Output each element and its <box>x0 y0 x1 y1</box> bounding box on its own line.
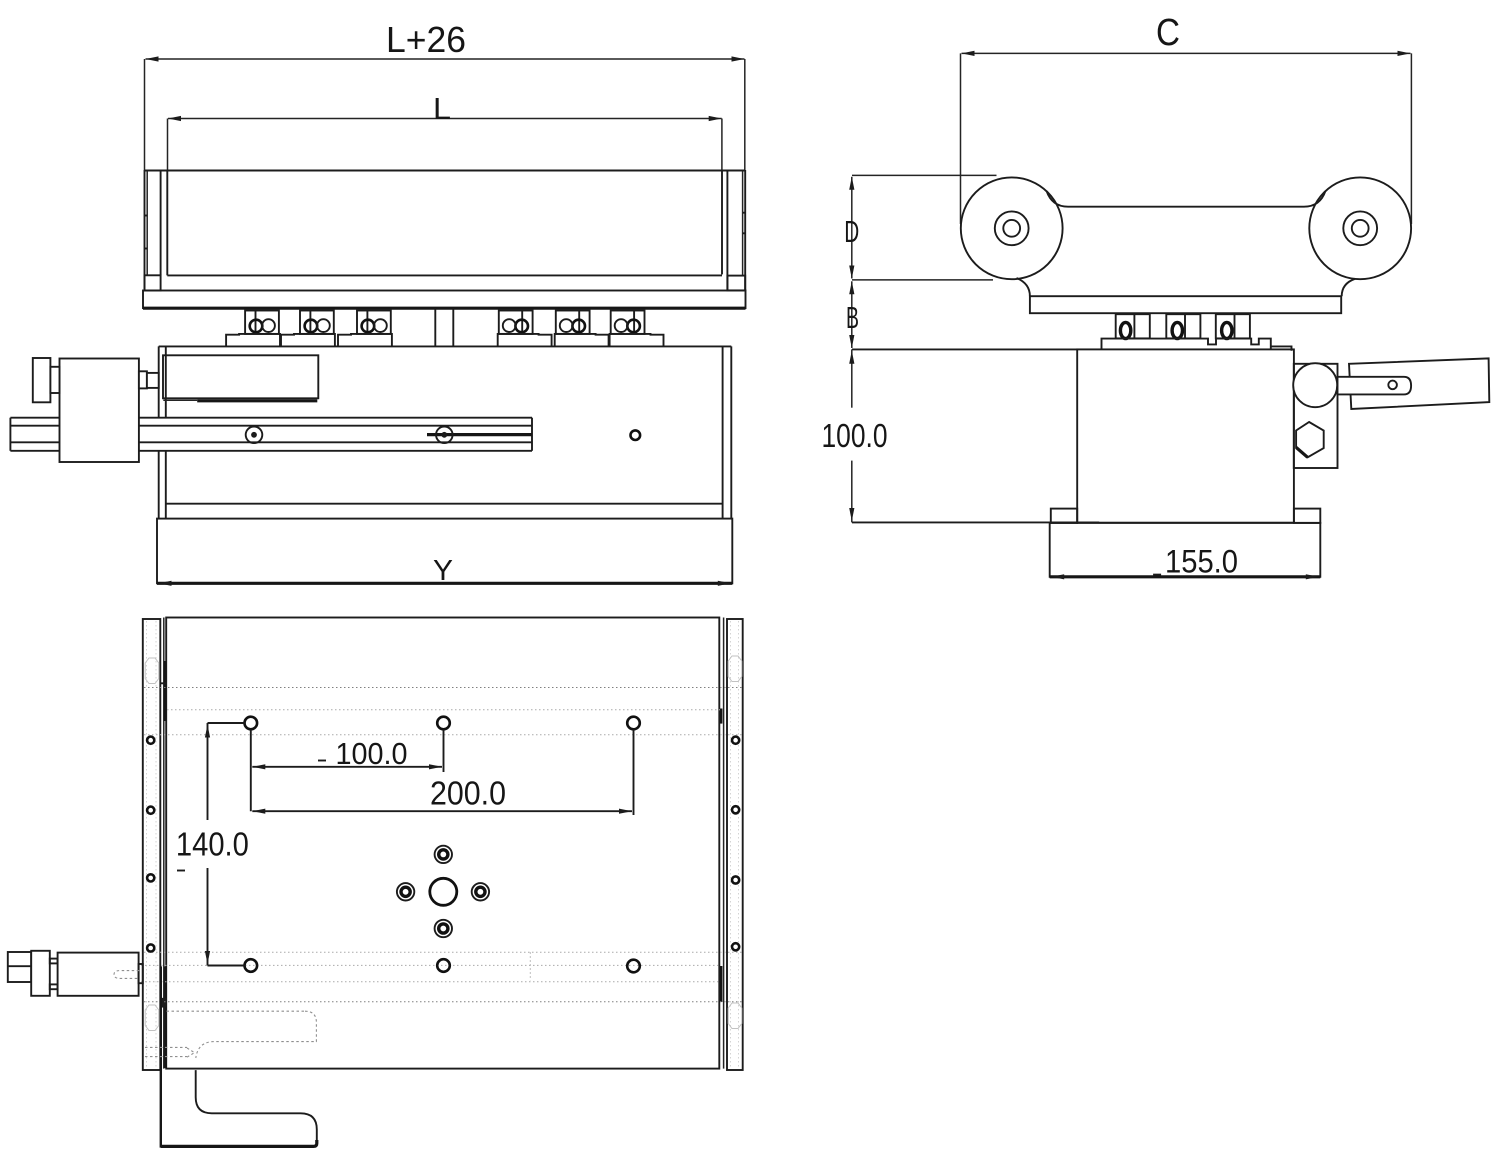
svg-text:100.0: 100.0 <box>336 736 408 771</box>
svg-text:L: L <box>433 91 451 126</box>
svg-text:155.0: 155.0 <box>1165 544 1238 580</box>
svg-text:Y: Y <box>433 555 453 587</box>
svg-text:L+26: L+26 <box>386 19 466 60</box>
svg-text:100.0: 100.0 <box>822 417 888 454</box>
svg-text:200.0: 200.0 <box>430 775 506 812</box>
svg-text:140.0: 140.0 <box>176 826 249 863</box>
svg-text:B: B <box>846 300 859 335</box>
svg-text:D: D <box>844 214 859 249</box>
svg-text:C: C <box>1156 12 1180 54</box>
